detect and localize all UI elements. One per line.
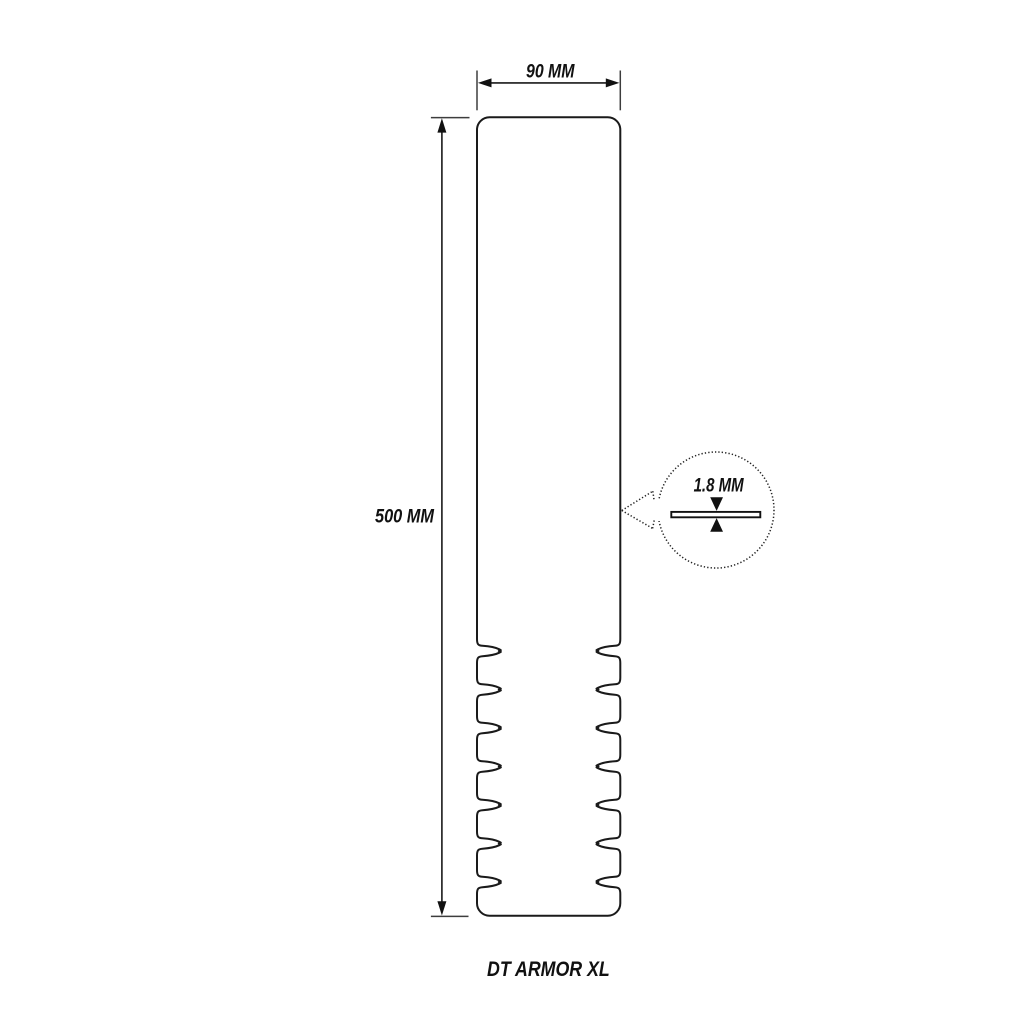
svg-text:1.8 MM: 1.8 MM [694, 475, 745, 496]
svg-text:500 MM: 500 MM [375, 507, 435, 528]
svg-text:90 MM: 90 MM [526, 62, 575, 83]
svg-text:DT ARMOR XL: DT ARMOR XL [487, 958, 610, 981]
